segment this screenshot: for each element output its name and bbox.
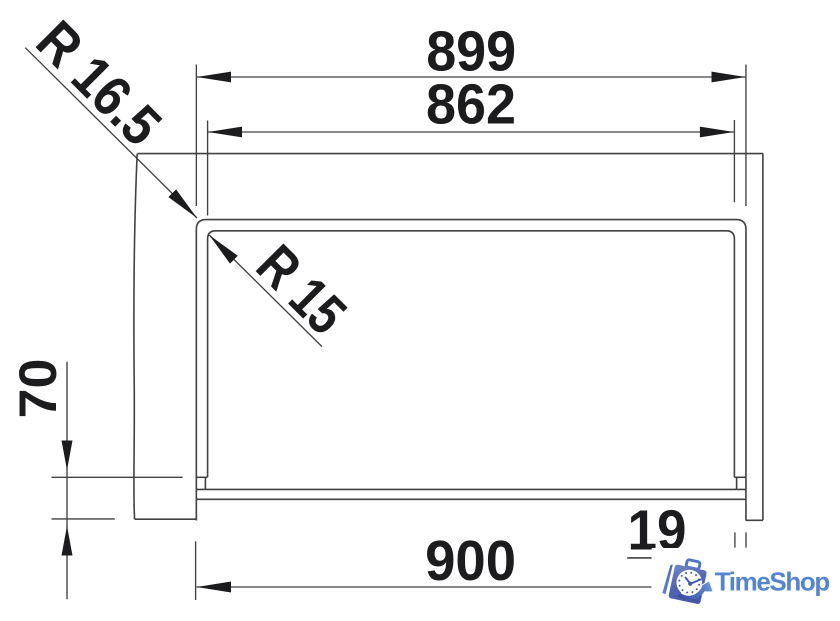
svg-text:862: 862 bbox=[426, 73, 516, 137]
svg-text:TimeShop: TimeShop bbox=[715, 566, 830, 596]
svg-text:70: 70 bbox=[9, 359, 68, 419]
svg-text:900: 900 bbox=[425, 529, 516, 593]
